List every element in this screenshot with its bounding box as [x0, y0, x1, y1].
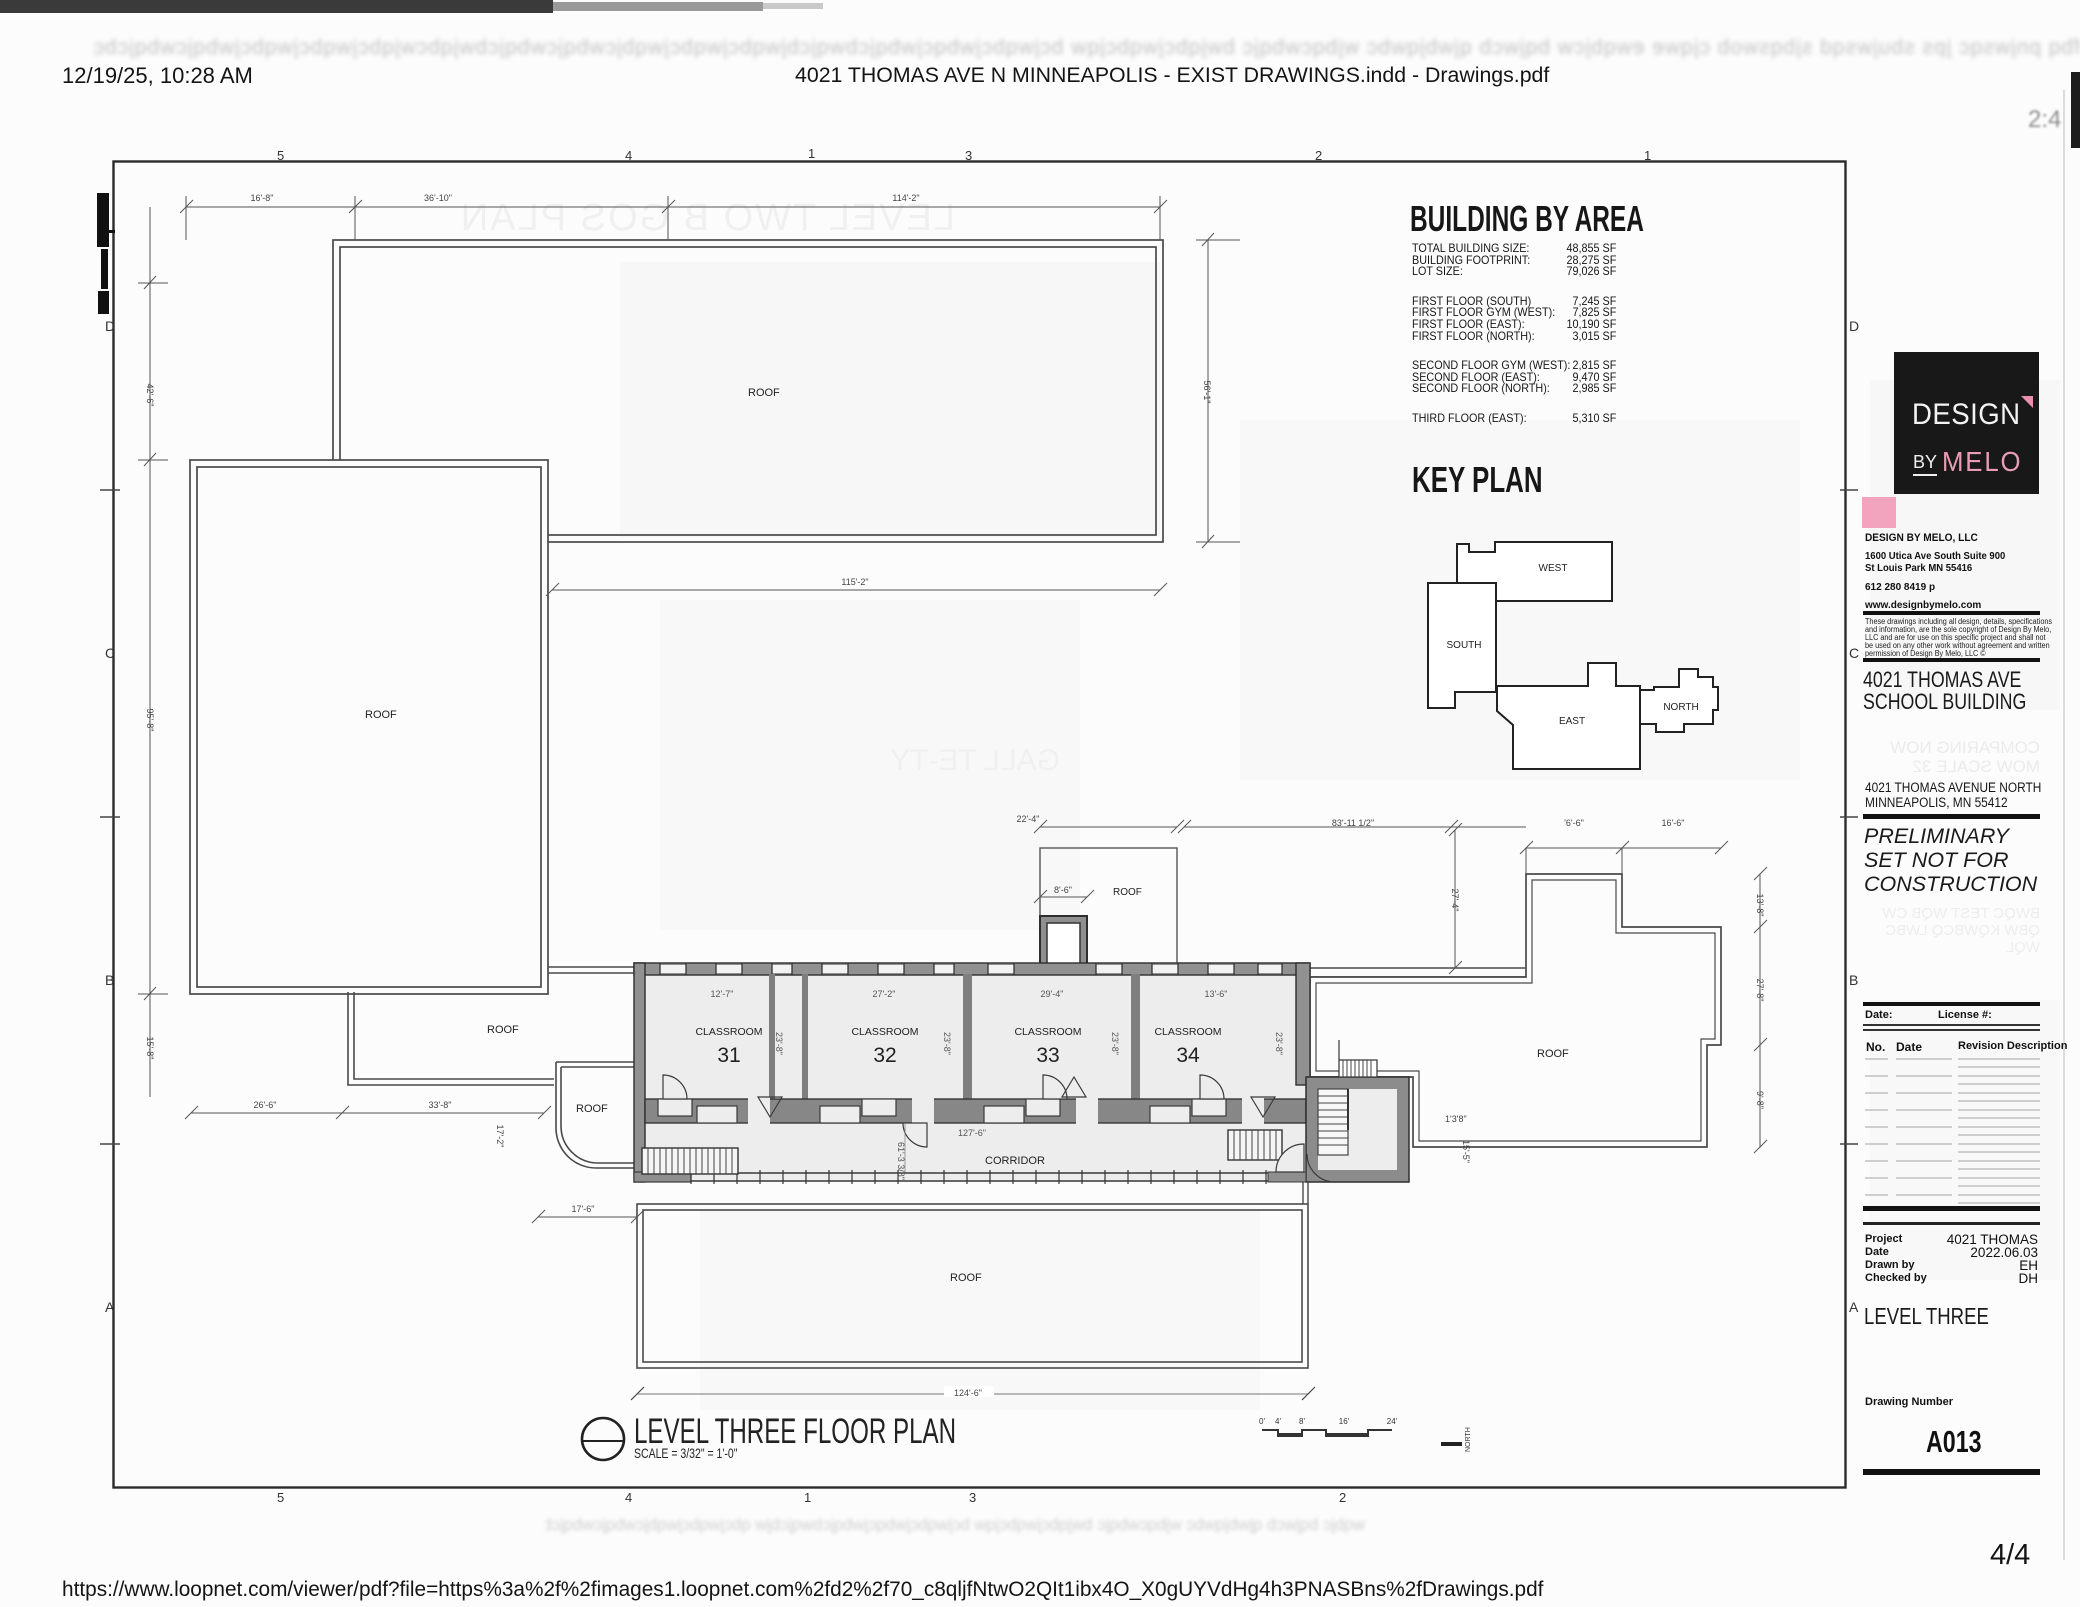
svg-text:0': 0'	[1259, 1417, 1265, 1426]
svg-text:8'-6": 8'-6"	[1054, 885, 1072, 895]
svg-text:17'-6": 17'-6"	[572, 1204, 595, 1214]
svg-text:1: 1	[1644, 148, 1651, 163]
svg-text:29'-4": 29'-4"	[1041, 989, 1064, 999]
svg-text:ROOF: ROOF	[1537, 1048, 1569, 1060]
svg-text:127'-6": 127'-6"	[958, 1128, 986, 1138]
svg-text:ROOF: ROOF	[1113, 887, 1142, 898]
svg-text:22'-4": 22'-4"	[1017, 814, 1040, 824]
svg-text:NORTH: NORTH	[1465, 1427, 1472, 1452]
svg-text:56'-1": 56'-1"	[1202, 381, 1212, 404]
svg-text:D: D	[105, 318, 115, 334]
svg-text:WEST: WEST	[1539, 563, 1568, 574]
svg-text:95'-8": 95'-8"	[145, 709, 155, 732]
svg-text:15'-5": 15'-5"	[1461, 1140, 1471, 1163]
svg-text:12'-7": 12'-7"	[711, 989, 734, 999]
svg-text:NORTH: NORTH	[1663, 702, 1698, 713]
svg-text:ROOF: ROOF	[950, 1272, 982, 1284]
svg-text:33'-8": 33'-8"	[429, 1100, 452, 1110]
svg-text:CLASSROOM: CLASSROOM	[851, 1026, 918, 1038]
svg-text:'6'-6": '6'-6"	[1564, 818, 1584, 828]
svg-text:LEVEL TWO B GOS PLAN: LEVEL TWO B GOS PLAN	[459, 197, 955, 239]
svg-text:A: A	[105, 1299, 115, 1315]
svg-text:32: 32	[873, 1044, 896, 1067]
svg-text:31: 31	[717, 1044, 740, 1067]
svg-text:9'-8": 9'-8"	[1755, 1091, 1765, 1109]
svg-text:17'-2": 17'-2"	[495, 1125, 505, 1148]
svg-text:GALL TE-TY: GALL TE-TY	[890, 744, 1060, 777]
svg-text:ROOF: ROOF	[576, 1103, 608, 1115]
svg-text:4': 4'	[1275, 1417, 1281, 1426]
svg-text:13'-8": 13'-8"	[1755, 894, 1765, 917]
svg-text:16': 16'	[1339, 1417, 1350, 1426]
svg-text:2: 2	[1315, 148, 1322, 163]
svg-text:B: B	[105, 972, 114, 988]
svg-text:23'-8": 23'-8"	[774, 1032, 784, 1055]
svg-text:27'-2": 27'-2"	[873, 989, 896, 999]
svg-text:CORRIDOR: CORRIDOR	[985, 1155, 1045, 1167]
svg-text:5: 5	[277, 1490, 284, 1505]
svg-text:ROOF: ROOF	[487, 1024, 519, 1036]
svg-text:B: B	[1849, 972, 1858, 988]
svg-text:115'-2": 115'-2"	[841, 577, 868, 587]
svg-text:4: 4	[625, 148, 632, 163]
svg-text:33: 33	[1036, 1044, 1059, 1067]
svg-text:4: 4	[625, 1490, 632, 1505]
svg-text:23'-8": 23'-8"	[942, 1032, 952, 1055]
svg-text:CLASSROOM: CLASSROOM	[1154, 1026, 1221, 1038]
svg-text:CLASSROOM: CLASSROOM	[1014, 1026, 1081, 1038]
svg-text:15'-8": 15'-8"	[145, 1037, 155, 1060]
svg-text:ROOF: ROOF	[365, 709, 397, 721]
svg-text:SOUTH: SOUTH	[1447, 640, 1482, 651]
svg-text:42'-6": 42'-6"	[145, 384, 155, 407]
svg-text:C: C	[105, 645, 115, 661]
svg-text:23'-8": 23'-8"	[1274, 1032, 1284, 1055]
svg-text:1: 1	[808, 146, 815, 161]
svg-text:A: A	[1849, 1299, 1859, 1315]
svg-text:2: 2	[1339, 1490, 1346, 1505]
svg-text:114'-2": 114'-2"	[892, 193, 919, 203]
svg-text:27'-4": 27'-4"	[1450, 889, 1460, 912]
svg-text:36'-10": 36'-10"	[424, 193, 452, 203]
svg-text:3: 3	[965, 148, 972, 163]
svg-text:24': 24'	[1387, 1417, 1398, 1426]
svg-text:CLASSROOM: CLASSROOM	[695, 1026, 762, 1038]
svg-text:C: C	[1849, 645, 1859, 661]
svg-text:ROOF: ROOF	[748, 387, 780, 399]
svg-text:27'-8": 27'-8"	[1755, 979, 1765, 1002]
svg-text:26'-6": 26'-6"	[254, 1100, 277, 1110]
svg-text:34: 34	[1176, 1044, 1200, 1067]
svg-text:1'3'8": 1'3'8"	[1445, 1114, 1467, 1124]
svg-text:13'-6": 13'-6"	[1205, 989, 1228, 999]
svg-text:61'-3 3/8": 61'-3 3/8"	[896, 1142, 906, 1180]
svg-text:EAST: EAST	[1559, 716, 1585, 727]
svg-text:D: D	[1849, 318, 1859, 334]
svg-text:3: 3	[969, 1490, 976, 1505]
svg-text:124'-6": 124'-6"	[954, 1388, 982, 1398]
svg-text:16'-8": 16'-8"	[251, 193, 274, 203]
svg-text:23'-8": 23'-8"	[1110, 1032, 1120, 1055]
svg-text:5: 5	[277, 148, 284, 163]
svg-text:16'-6": 16'-6"	[1662, 818, 1685, 828]
svg-text:1: 1	[804, 1490, 811, 1505]
svg-text:8': 8'	[1299, 1417, 1305, 1426]
